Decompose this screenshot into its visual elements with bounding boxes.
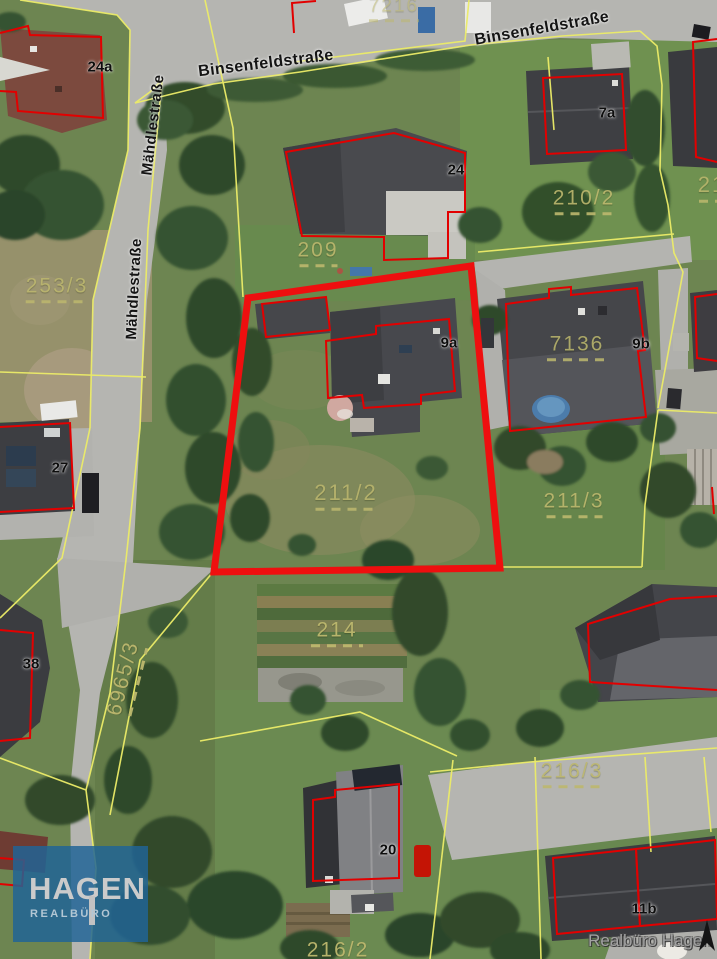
parcel-dash-mark (26, 300, 88, 303)
parcel-number: 211/3 (544, 489, 605, 512)
parcel-number-label: 210/2 (553, 187, 616, 215)
parcel-number-label: 216/2 (307, 940, 370, 959)
parcel-number-label: 21 (698, 174, 717, 203)
parcel-number: 21 (698, 172, 717, 197)
parcel-dash-mark (699, 200, 717, 203)
house-number-label: 9b (632, 336, 650, 353)
house-number-label: 11b (631, 901, 656, 918)
parcel-number: 209 (297, 238, 338, 261)
north-arrow-icon (694, 917, 717, 957)
house-number-label: 7a (599, 105, 616, 122)
house-number-label: 24a (87, 59, 112, 76)
parcel-number: 211/2 (314, 480, 377, 505)
house-number-label: 38 (23, 656, 40, 673)
house-number-label: 20 (380, 842, 397, 859)
parcel-dash-mark (555, 212, 613, 215)
parcel-number: 214 (316, 618, 357, 641)
parcel-dash-mark (546, 515, 602, 518)
parcel-number-label: 7216 (369, 0, 419, 22)
aerial-map: BinsenfeldstraßeBinsenfeldstraßeMähdlest… (0, 0, 717, 959)
parcel-dash-mark (547, 358, 607, 361)
parcel-number: 216/3 (541, 759, 604, 782)
parcel-number-label: 211/3 (544, 490, 605, 518)
parcel-number: 7216 (369, 0, 419, 16)
parcel-number-label: 7136 (547, 333, 607, 361)
house-number-label: 27 (52, 460, 69, 477)
house-number-label: 9a (441, 335, 458, 352)
parcel-number: 7136 (550, 332, 605, 355)
parcel-number-label: 253/3 (26, 275, 89, 303)
hagen-logo-subtitle: REALBÜRO (30, 908, 112, 920)
parcel-dash-mark (543, 785, 601, 788)
hagen-logo-title: HAGEN (29, 873, 146, 904)
parcel-number-label: 211/2 (314, 482, 377, 511)
parcel-dash-mark (311, 644, 363, 647)
parcel-number: 216/2 (307, 939, 370, 959)
parcel-dash-mark (315, 508, 377, 511)
house-number-label: 24 (448, 162, 465, 179)
hagen-logo: HAGEN REALBÜRO (13, 846, 148, 942)
parcel-dash-mark (369, 19, 419, 22)
parcel-number: 210/2 (553, 186, 616, 209)
parcel-number: 253/3 (26, 274, 89, 297)
parcel-number-label: 214 (311, 619, 363, 647)
parcel-number-label: 216/3 (541, 760, 604, 788)
parcel-number-label: 209 (297, 239, 338, 267)
parcel-dash-mark (299, 264, 337, 267)
